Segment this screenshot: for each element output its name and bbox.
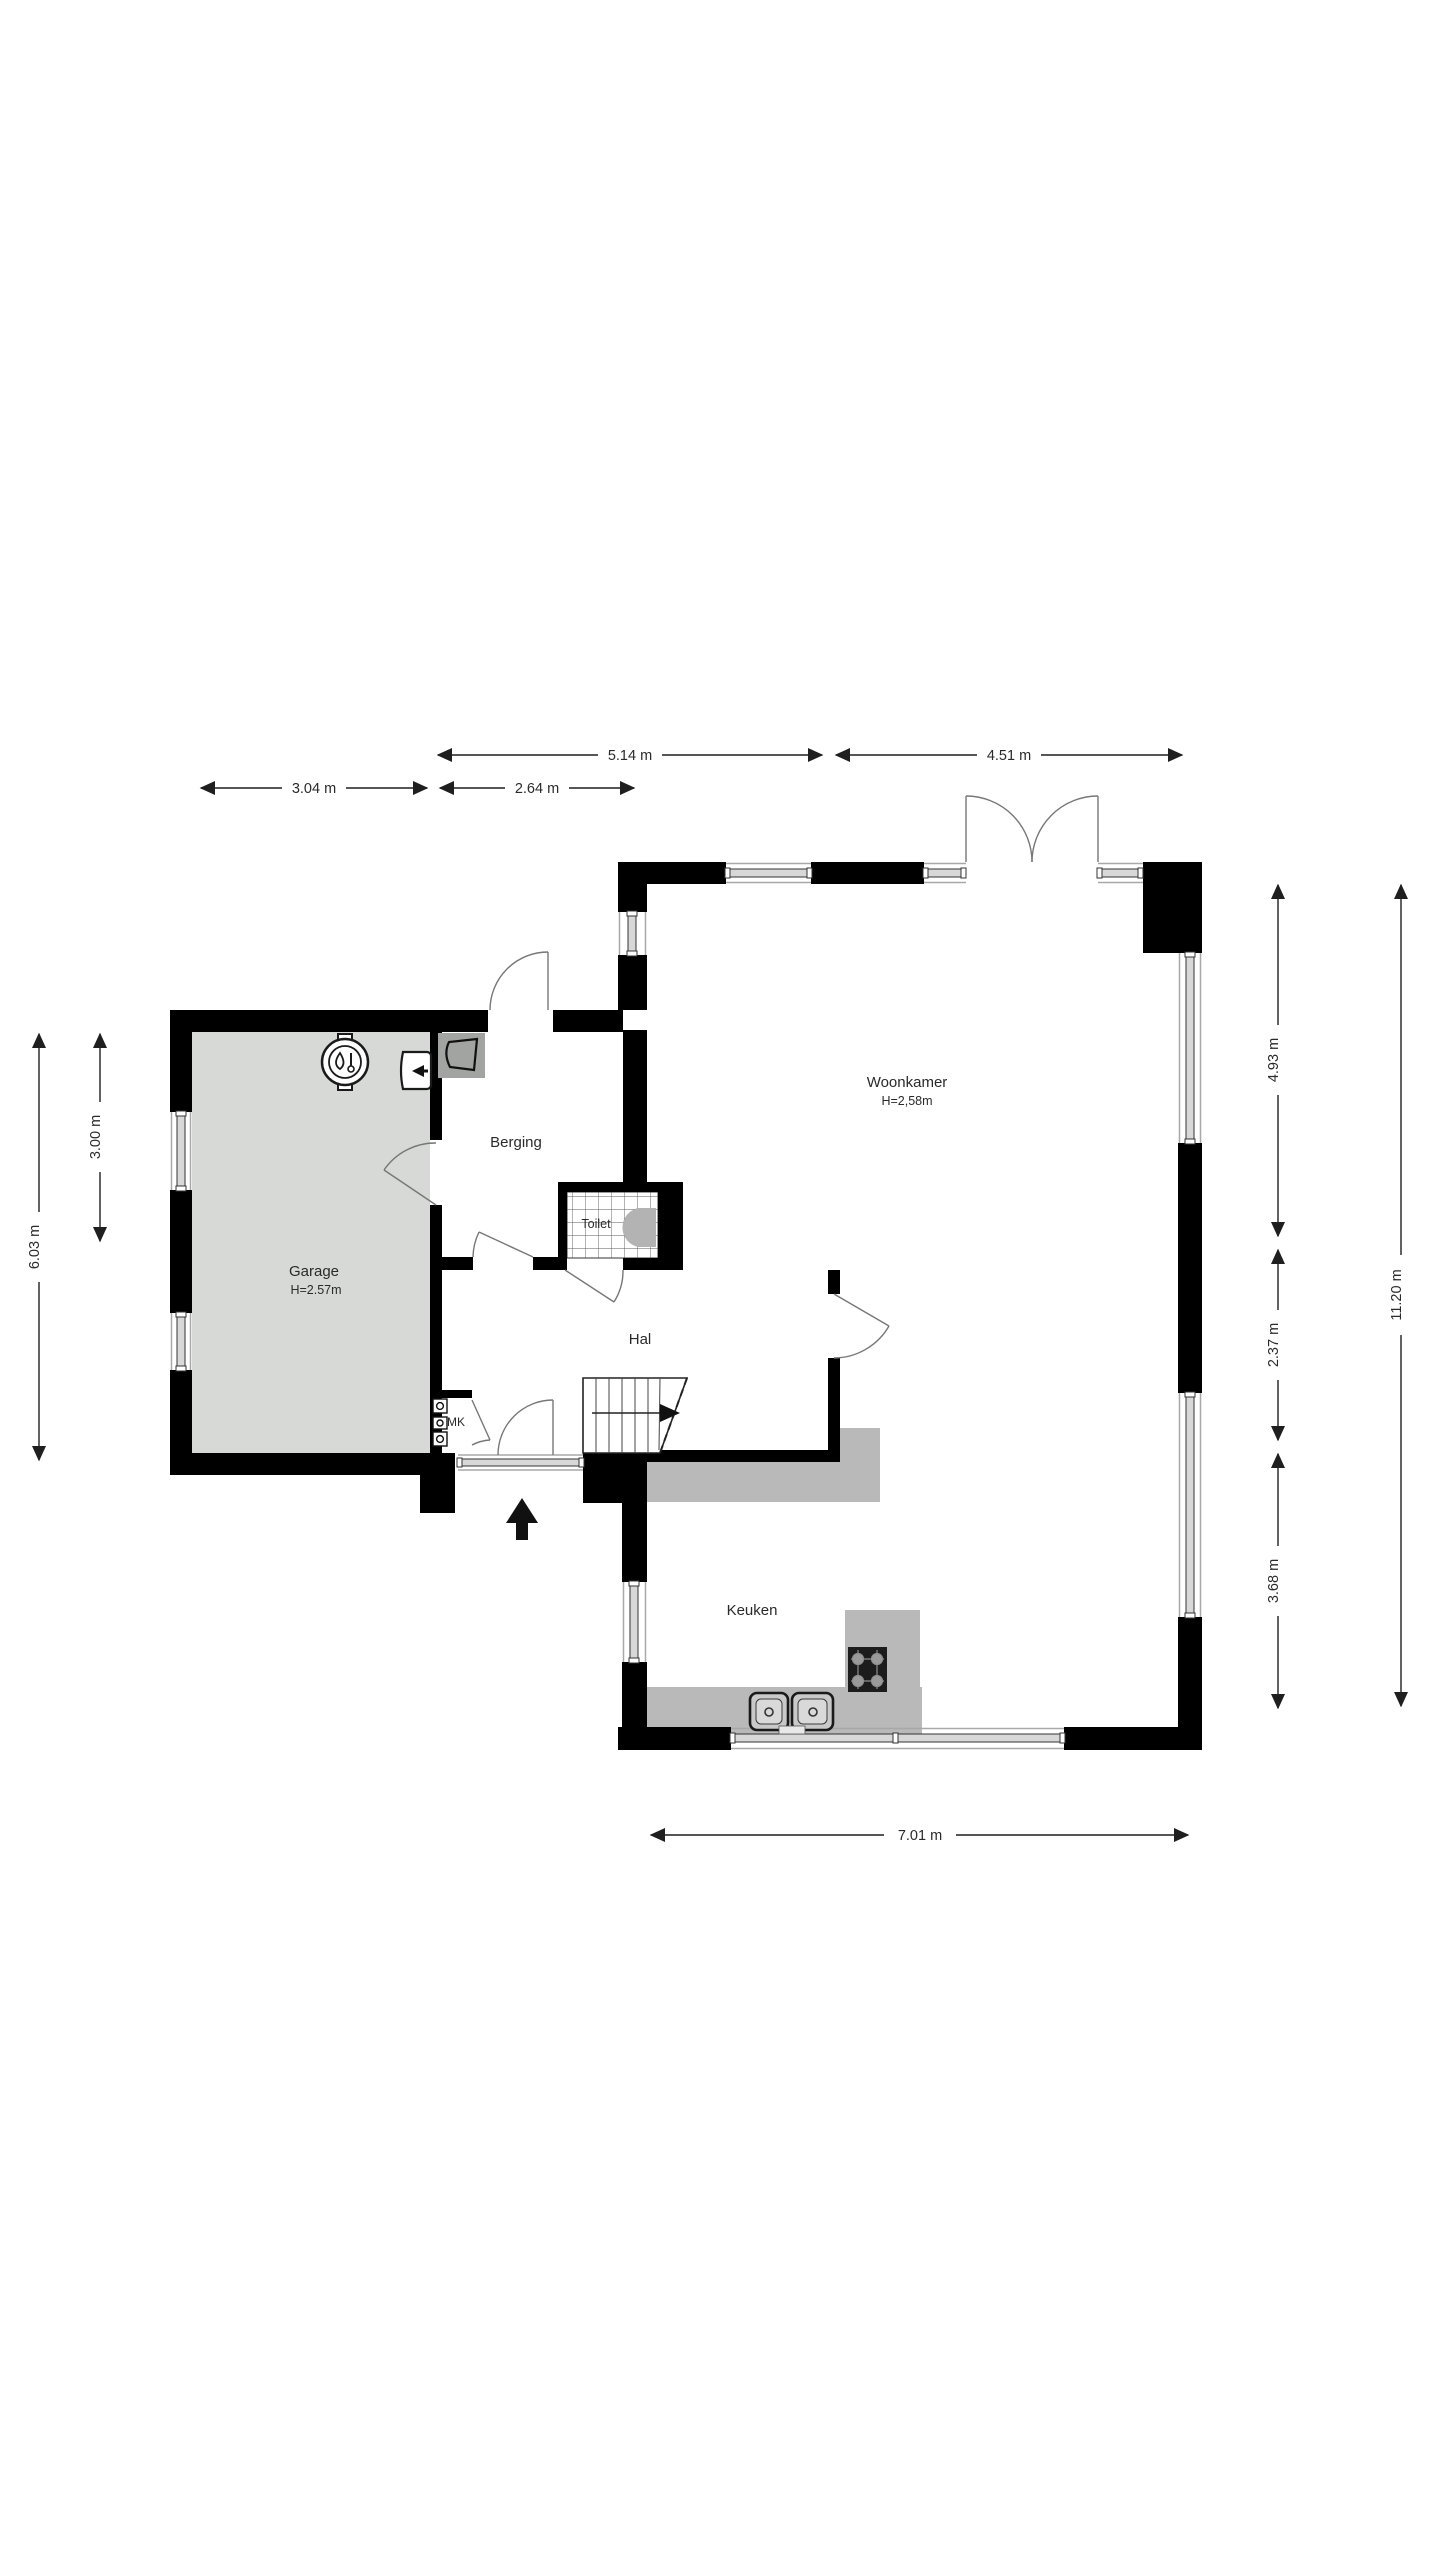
dimension-right-2-37: 2.37 m: [1266, 1323, 1282, 1367]
window-top-3: [1097, 864, 1143, 883]
window-livingroom-left: [620, 911, 646, 956]
room-label-toilet: Toilet: [581, 1217, 611, 1231]
room-label-garage: Garage: [289, 1263, 339, 1280]
hal-woonkamer-door: [834, 1294, 889, 1358]
window-garage-left-1: [172, 1111, 191, 1191]
window-top-1: [725, 864, 812, 883]
front-door: [498, 1400, 553, 1455]
window-garage-left-2: [172, 1312, 191, 1371]
stairs: [583, 1378, 687, 1453]
dimension-top-3-04: 3.04 m: [292, 781, 336, 797]
berging-back-door: [490, 952, 548, 1010]
room-label-keuken: Keuken: [727, 1602, 778, 1619]
floor-fills: [192, 1032, 922, 1735]
dimension-right-11-20: 11.20 m: [1389, 1269, 1405, 1320]
wall-unit-icon: [401, 1052, 431, 1089]
floorplan-canvas: Woonkamer H=2,58m Berging Toilet Garage …: [0, 0, 1440, 2560]
dimension-right-3-68: 3.68 m: [1266, 1559, 1282, 1603]
dimension-bottom-7-01: 7.01 m: [898, 1828, 942, 1844]
room-label-woonkamer: Woonkamer: [867, 1074, 948, 1091]
room-label-mk: MK: [447, 1415, 465, 1429]
entrance-arrow-icon: [506, 1498, 538, 1540]
dimension-top-4-51: 4.51 m: [987, 748, 1031, 764]
room-height-woonkamer: H=2,58m: [881, 1094, 932, 1108]
entry-floor-patch: [647, 1428, 880, 1502]
mk-door: [472, 1400, 490, 1445]
dimension-left-3-00: 3.00 m: [88, 1115, 104, 1159]
garage-floor: [192, 1032, 430, 1453]
window-kitchen-left: [624, 1581, 646, 1663]
entrance-sidelight: [457, 1455, 584, 1470]
window-right-1: [1180, 952, 1201, 1144]
meter-cabinet-icon: [433, 1399, 447, 1446]
doors: [384, 796, 1098, 1455]
window-right-2: [1180, 1392, 1201, 1618]
berging-inner-door: [473, 1232, 533, 1257]
french-doors: [966, 796, 1098, 862]
dimension-left-6-03: 6.03 m: [27, 1225, 43, 1269]
dimension-right-4-93: 4.93 m: [1266, 1038, 1282, 1082]
window-top-2: [923, 864, 966, 883]
stove-icon: [848, 1647, 887, 1692]
kitchen-sink-icon: [750, 1693, 833, 1734]
dimension-top-5-14: 5.14 m: [608, 748, 652, 764]
room-label-hal: Hal: [629, 1331, 652, 1348]
dimension-top-2-64: 2.64 m: [515, 781, 559, 797]
room-height-garage: H=2.57m: [290, 1283, 341, 1297]
toilet-door: [565, 1270, 623, 1302]
utility-box-icon: [438, 1033, 485, 1078]
room-label-berging: Berging: [490, 1134, 542, 1151]
